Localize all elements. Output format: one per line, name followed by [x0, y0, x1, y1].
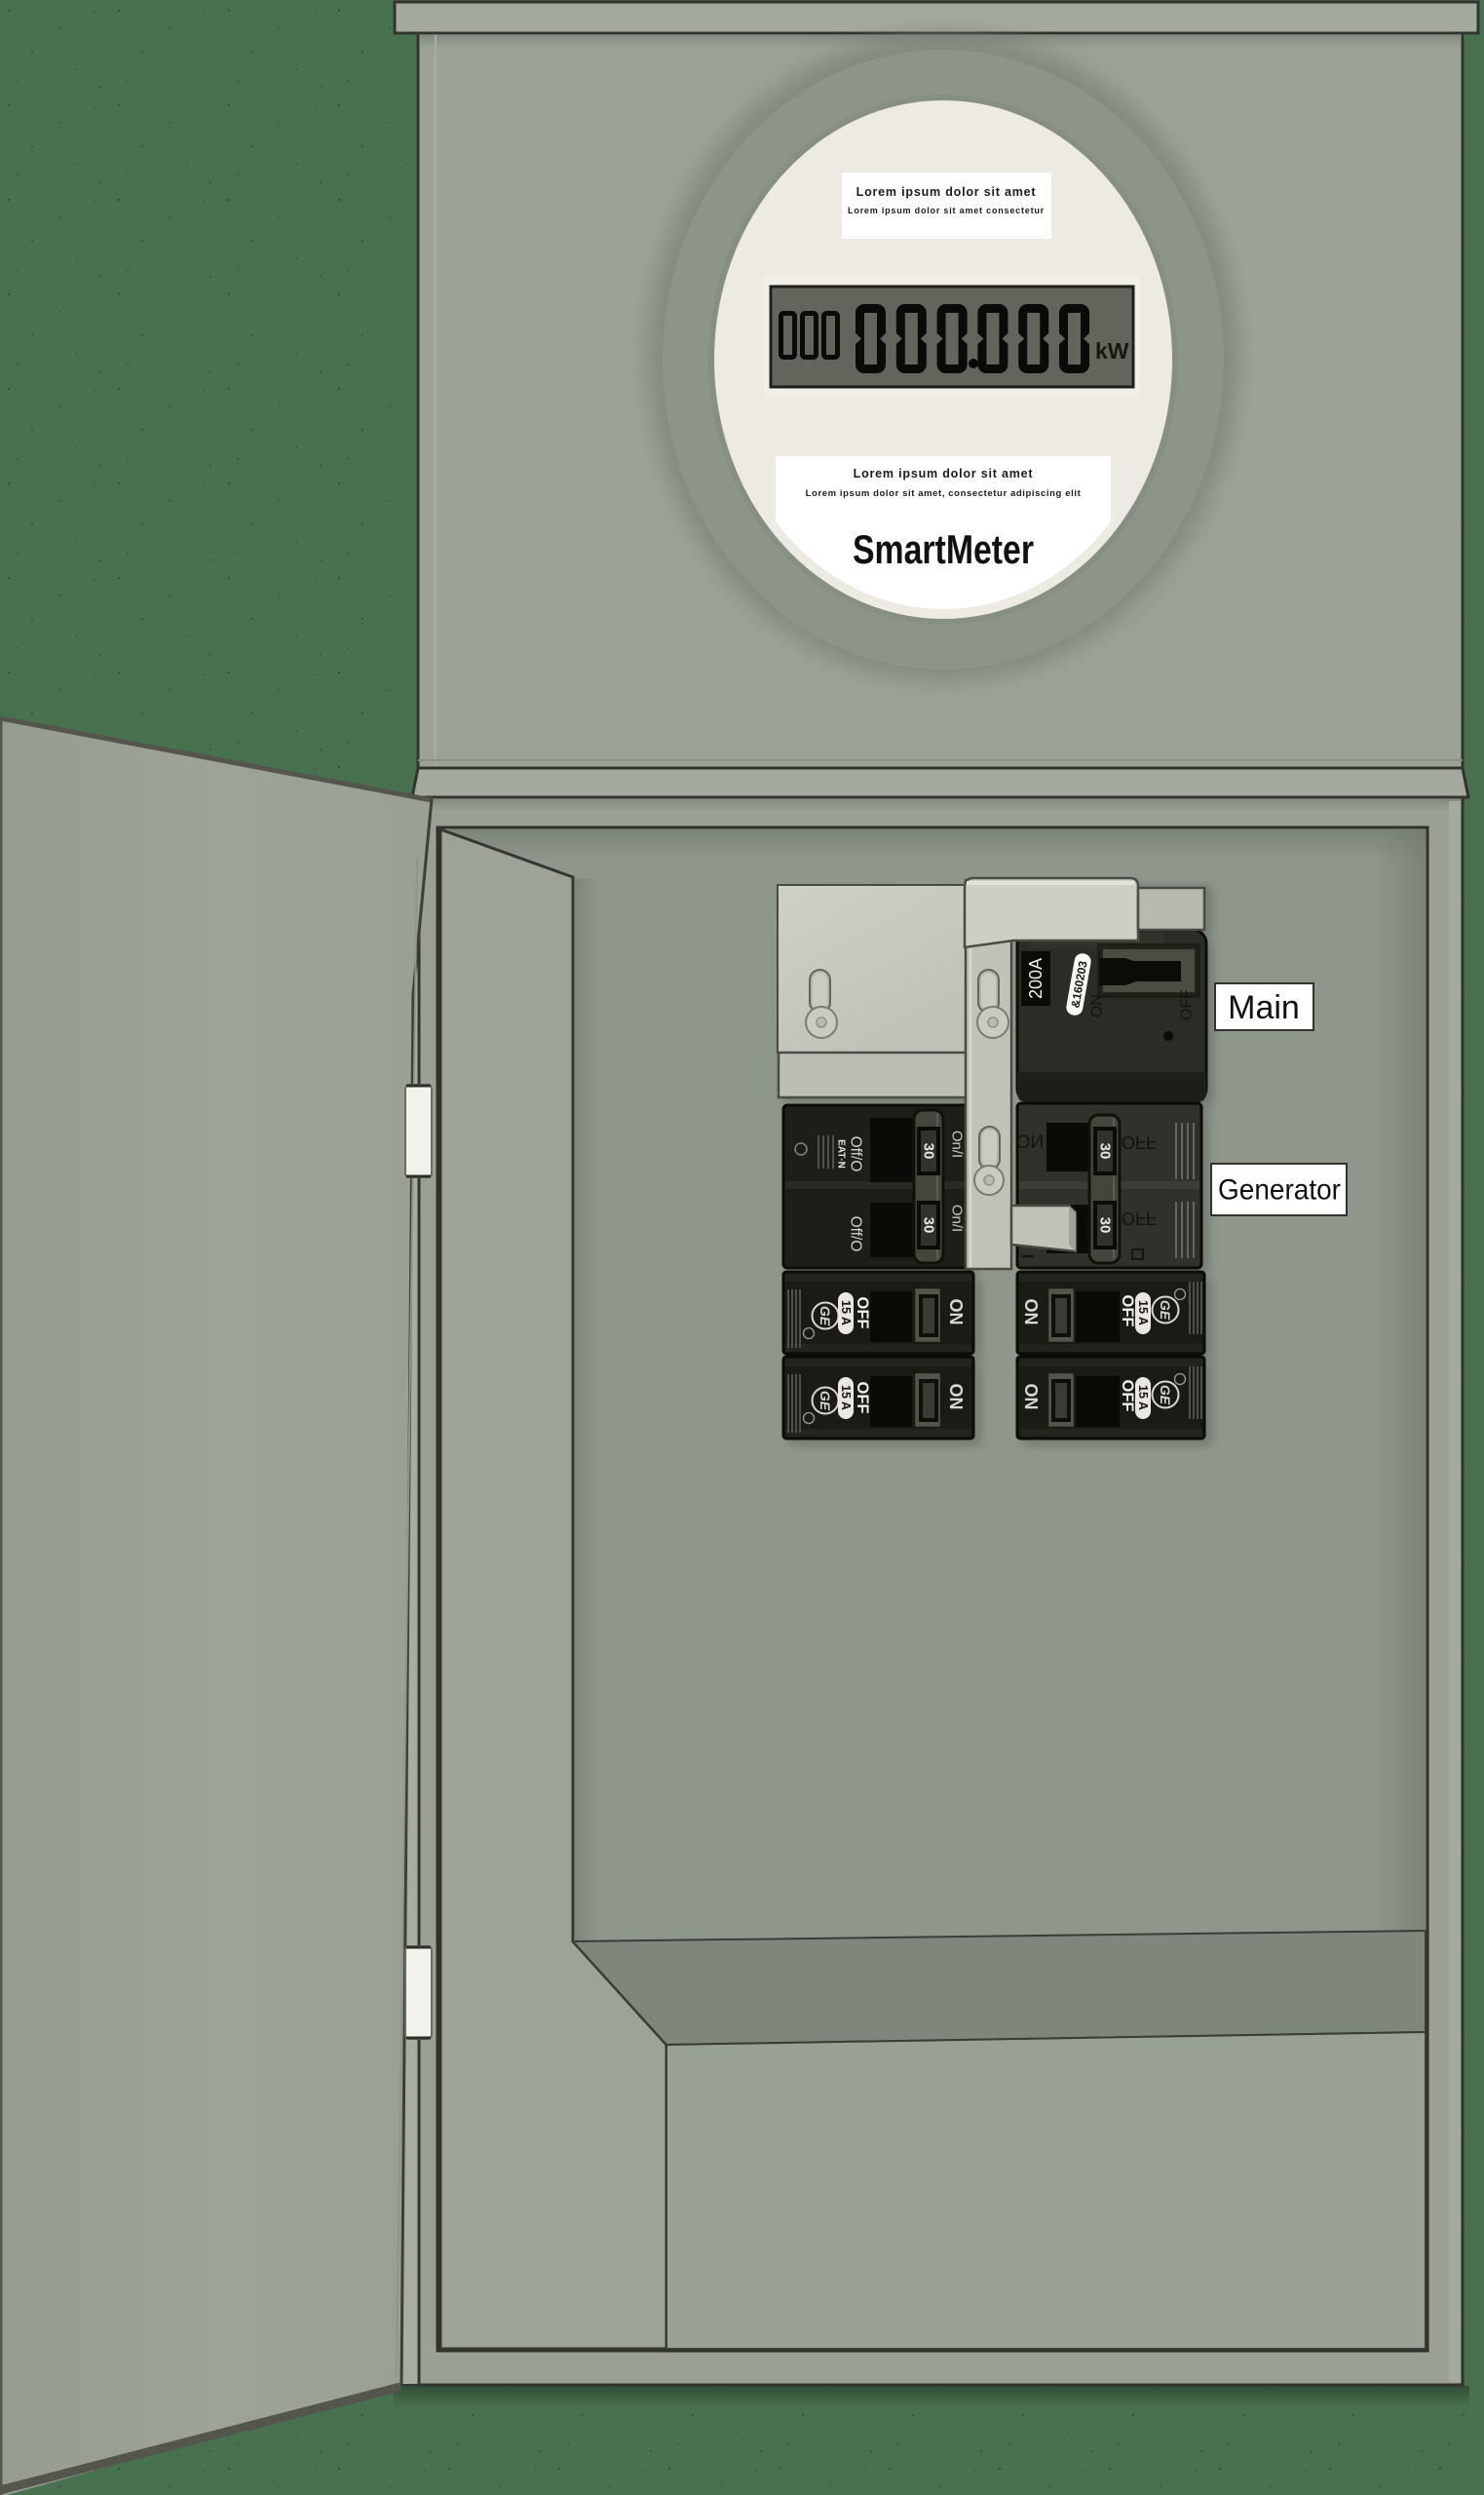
svg-text:OFF: OFF [1122, 1209, 1157, 1228]
svg-text:Main: Main [1228, 989, 1300, 1026]
svg-text:EAT·N: EAT·N [836, 1139, 847, 1169]
svg-text:30: 30 [921, 1217, 937, 1234]
svg-text:OFF: OFF [854, 1382, 871, 1414]
svg-text:On/I: On/I [949, 1205, 966, 1232]
svg-text:GE: GE [1158, 1385, 1173, 1405]
svg-text:Lorem ipsum dolor sit amet, co: Lorem ipsum dolor sit amet, consectetur … [806, 488, 1082, 499]
svg-text:15 A: 15 A [839, 1300, 853, 1325]
svg-text:200A: 200A [1026, 958, 1046, 999]
svg-text:Lorem ipsum dolor sit amet: Lorem ipsum dolor sit amet [856, 185, 1037, 199]
svg-text:OFF: OFF [1119, 1380, 1136, 1412]
svg-text:30: 30 [1097, 1217, 1114, 1234]
svg-text:Off/O: Off/O [848, 1136, 864, 1172]
svg-text:OFF: OFF [1179, 989, 1196, 1020]
svg-text:Off/O: Off/O [848, 1216, 864, 1252]
svg-text:On/I: On/I [949, 1131, 966, 1158]
svg-text:ON: ON [946, 1299, 966, 1325]
svg-text:ON: ON [946, 1384, 966, 1410]
svg-text:GE: GE [818, 1391, 833, 1411]
svg-text:ON: ON [1021, 1384, 1041, 1410]
svg-text:OFF: OFF [854, 1297, 871, 1329]
svg-text:Lorem ipsum dolor sit amet con: Lorem ipsum dolor sit amet consectetur [848, 206, 1045, 215]
svg-text:SmartMeter: SmartMeter [853, 526, 1034, 572]
svg-text:ON: ON [1021, 1299, 1041, 1325]
svg-text:30: 30 [1097, 1143, 1114, 1160]
svg-text:GE: GE [818, 1306, 833, 1326]
svg-text:15 A: 15 A [1136, 1385, 1150, 1410]
svg-text:GE: GE [1158, 1300, 1173, 1321]
svg-text:OFF: OFF [1122, 1132, 1157, 1152]
svg-text:OFF: OFF [1119, 1295, 1136, 1327]
svg-text:15 A: 15 A [839, 1385, 853, 1410]
svg-text:ON: ON [1016, 1131, 1045, 1151]
svg-text:Generator: Generator [1218, 1174, 1341, 1207]
svg-text:Lorem ipsum dolor sit amet: Lorem ipsum dolor sit amet [854, 467, 1034, 480]
svg-text:ON: ON [1089, 994, 1106, 1017]
svg-text:kW: kW [1095, 338, 1129, 364]
svg-text:15 A: 15 A [1136, 1300, 1150, 1325]
svg-text:30: 30 [921, 1143, 937, 1160]
